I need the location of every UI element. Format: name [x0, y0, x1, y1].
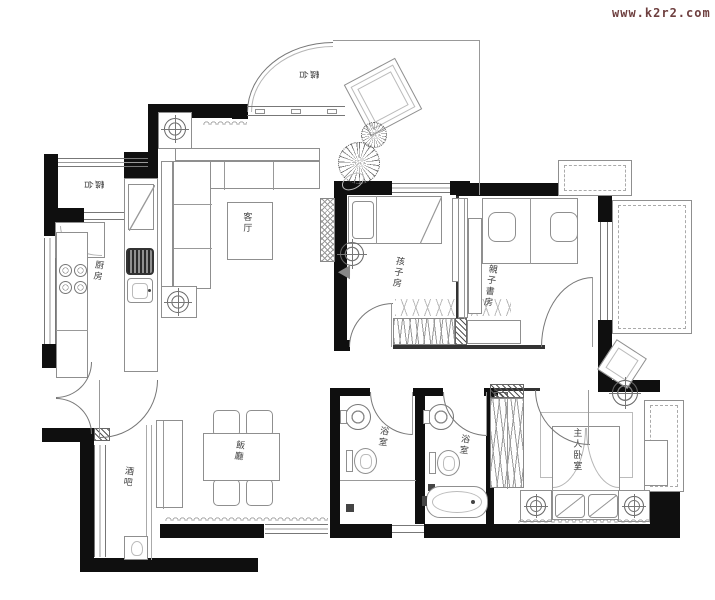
tub-drain [471, 500, 475, 504]
bed-line [376, 196, 377, 244]
sink-faucet [340, 410, 347, 424]
wall-segment [598, 196, 612, 222]
wall-segment [330, 392, 340, 524]
bookshelf [458, 198, 468, 318]
desk-chair [488, 212, 516, 242]
floorplan-canvas: www.k2r2.com [0, 0, 715, 600]
desk-divider [530, 198, 531, 264]
plant [361, 122, 387, 148]
shelf-line [464, 199, 465, 319]
lamp-icon [526, 496, 546, 516]
kitchen-grill [126, 248, 154, 275]
window-bench [644, 440, 668, 486]
wardrobe-hatch [490, 384, 524, 398]
refrigerator [128, 184, 154, 230]
room-label-balcony-left: 露台 [82, 178, 104, 188]
sofa-cushion-line [273, 162, 274, 190]
lounge-chair-inner [605, 347, 638, 380]
kitchen-sink [127, 278, 153, 303]
tub-faucet [422, 496, 427, 506]
vase-inner [131, 541, 143, 556]
kids-pillow [352, 201, 374, 239]
lamp-icon [164, 118, 186, 140]
wall-segment [80, 442, 94, 562]
pillow [588, 494, 618, 518]
wall-segment [80, 558, 258, 572]
wall-segment [650, 486, 680, 538]
floor-vase [124, 536, 148, 560]
wardrobe-shelf [467, 320, 521, 344]
entry-side-window [94, 445, 106, 557]
bathtub [426, 486, 488, 518]
kids-wardrobe [393, 318, 455, 345]
wall-segment [330, 524, 392, 538]
counter-divider [56, 330, 88, 331]
toilet-tank [346, 450, 353, 472]
room-label-living: 客厅 [241, 212, 251, 234]
sofa-cushion-line [174, 248, 212, 249]
balcony-curve-inner [251, 46, 333, 112]
kids-room-window [392, 183, 450, 193]
study-bay-window [600, 222, 608, 320]
desk-return [468, 218, 482, 314]
shower-drain [346, 504, 354, 512]
bay-window-inner [618, 205, 686, 329]
lamp-icon [624, 496, 644, 516]
entry-door-arc [56, 362, 92, 398]
wall-segment [424, 524, 668, 538]
balcony-railing [58, 158, 148, 167]
bath-vent-window [392, 525, 424, 533]
master-wardrobe [490, 398, 524, 488]
sliding-door-tick [291, 109, 301, 114]
partition-wall [393, 345, 545, 349]
kitchen-door-leaf [99, 380, 100, 438]
pillow [555, 494, 585, 518]
kitchen-counter-left [56, 232, 88, 378]
bar-counter [156, 420, 183, 508]
wardrobe-rod [507, 399, 508, 489]
sofa-cushion-line [224, 162, 225, 190]
toilet-bowl-inner [443, 456, 455, 471]
master-door-leaf [588, 390, 589, 445]
ceiling-lamp-icon [340, 242, 364, 266]
bathroom-sink [345, 404, 371, 430]
desk-chair [550, 212, 578, 242]
sofa-back [175, 148, 320, 161]
wall-segment [52, 208, 84, 222]
lamp-icon [167, 291, 189, 313]
room-label-bar: 酒吧 [121, 465, 134, 488]
bed-line [552, 490, 620, 491]
bay-window-inner [564, 165, 626, 191]
sliding-door-tick [327, 109, 337, 114]
bath-door-arc [443, 392, 487, 436]
room-label-bath-right: 浴室 [457, 433, 470, 456]
toilet-tank [429, 452, 436, 474]
dining-chair [213, 479, 240, 506]
study-door-arc [541, 277, 593, 347]
balcony-edge [479, 40, 480, 195]
stove-burner [74, 281, 87, 294]
refrigerator-mark [129, 185, 155, 231]
bar-counter-line [163, 421, 164, 509]
dining-chair [246, 479, 273, 506]
kids-door-leaf [391, 303, 392, 347]
sofa-cushion-line [174, 204, 212, 205]
tv-cabinet [320, 198, 335, 262]
study-door-leaf [592, 277, 593, 347]
dining-window [265, 524, 328, 534]
watermark: www.k2r2.com [612, 6, 711, 20]
balcony-edge [333, 40, 480, 41]
wall-segment [334, 340, 350, 351]
toilet-bowl-inner [360, 454, 372, 469]
kids-door-arc [349, 303, 393, 347]
wardrobe-hatch [455, 318, 467, 345]
sink-faucet [423, 410, 430, 424]
sliding-door [247, 106, 345, 116]
sliding-door-tick [255, 109, 265, 114]
room-label-kids: 孩子房 [390, 255, 405, 289]
toilet-bowl [354, 448, 377, 474]
sink-faucet [148, 289, 151, 292]
sofa-back [161, 161, 173, 289]
bath-door-arc [370, 392, 413, 435]
stove-burner [74, 264, 87, 277]
closet-rod-marks [395, 299, 511, 316]
room-label-kitchen: 厨房 [91, 259, 104, 282]
shower-divider [340, 480, 416, 481]
bath-door-leaf [486, 392, 487, 436]
curtain-squiggle [165, 514, 328, 521]
sofa-seat [173, 161, 211, 289]
bath-door-leaf [412, 392, 413, 435]
blanket-fold [420, 196, 442, 244]
curtain-squiggle [518, 516, 650, 523]
room-label-bath-left: 浴室 [376, 425, 389, 448]
floor-lamp-icon [612, 380, 638, 406]
stove-burner [59, 264, 72, 277]
sink-basin [132, 283, 148, 299]
entry-door-arc [56, 398, 92, 434]
balcony-table [344, 58, 422, 136]
stove-burner [59, 281, 72, 294]
wall-segment [42, 344, 56, 368]
wall-segment [160, 524, 264, 538]
room-label-balcony-top: 露台 [297, 68, 319, 78]
wall-segment [456, 183, 562, 196]
curtain-squiggle [203, 118, 247, 125]
wall-segment [148, 112, 158, 156]
